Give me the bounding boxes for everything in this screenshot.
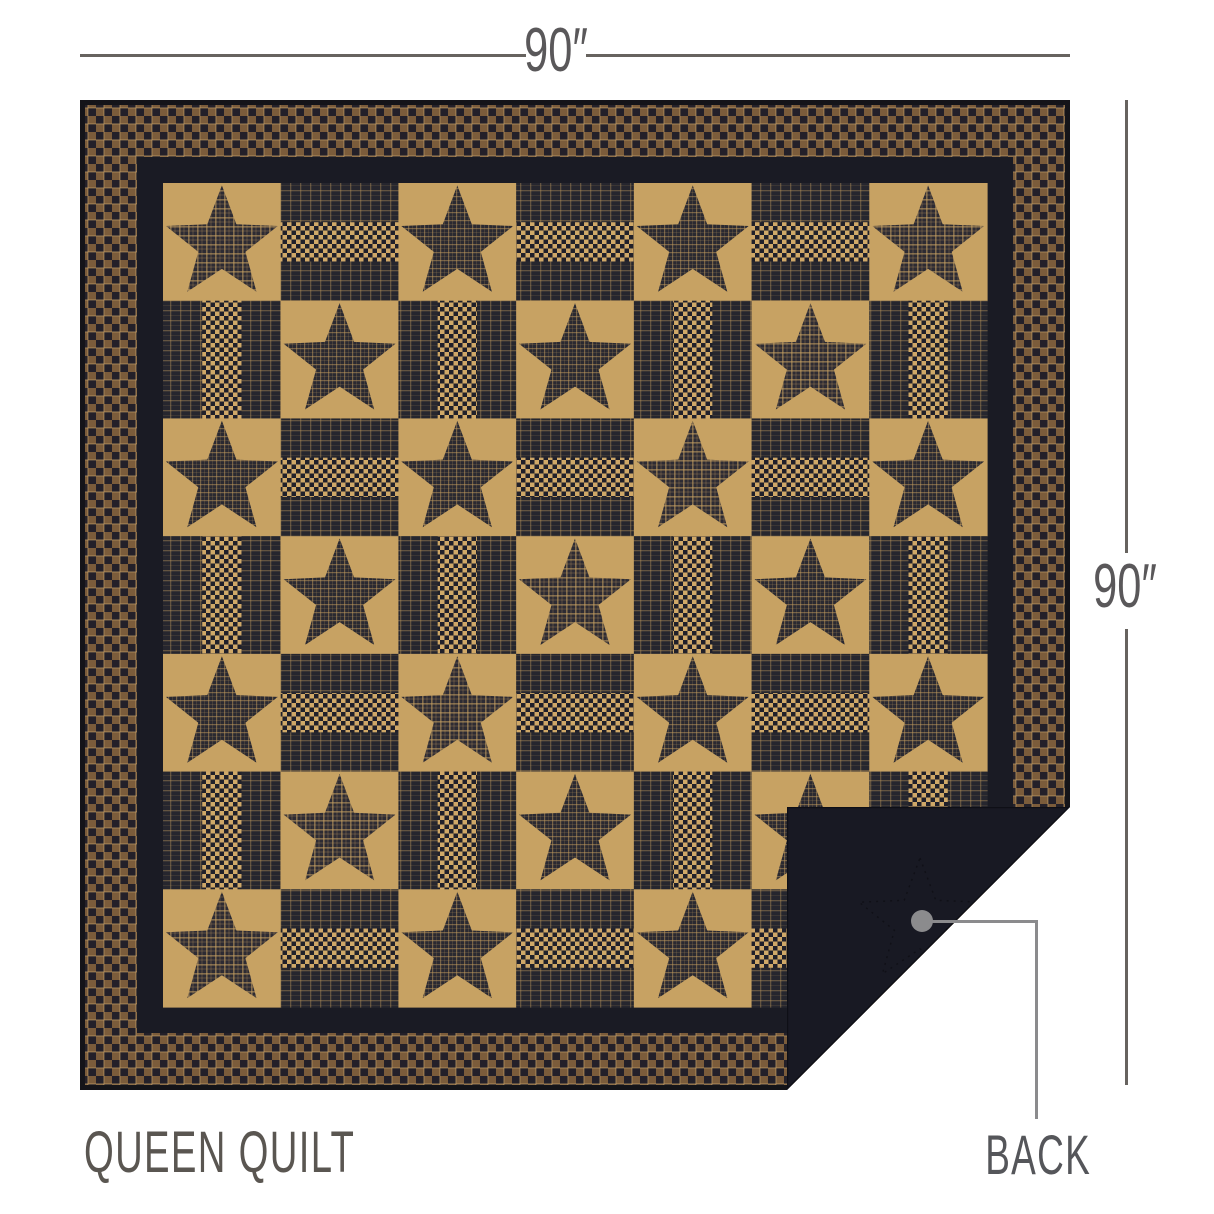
- top-dimension-line-right: [586, 54, 1070, 57]
- right-dimension-label: 90″: [1081, 556, 1169, 618]
- right-dimension-line-top: [1125, 100, 1128, 553]
- product-dimension-diagram: 90″ 90″ QUEEN QUILT BACK: [0, 0, 1214, 1214]
- back-leader-dot: [911, 910, 933, 932]
- top-dimension-line-left: [80, 54, 526, 57]
- quilt-photo: [80, 100, 1070, 1090]
- back-leader-line-vertical: [1035, 920, 1038, 1119]
- quilt-back-fold: [787, 807, 1070, 1090]
- back-label: BACK: [985, 1127, 1091, 1183]
- right-dimension-line-bottom: [1125, 629, 1128, 1085]
- back-leader-line-horizontal: [921, 920, 1038, 923]
- top-dimension-label: 90″: [514, 20, 598, 82]
- front-label: QUEEN QUILT: [84, 1124, 355, 1182]
